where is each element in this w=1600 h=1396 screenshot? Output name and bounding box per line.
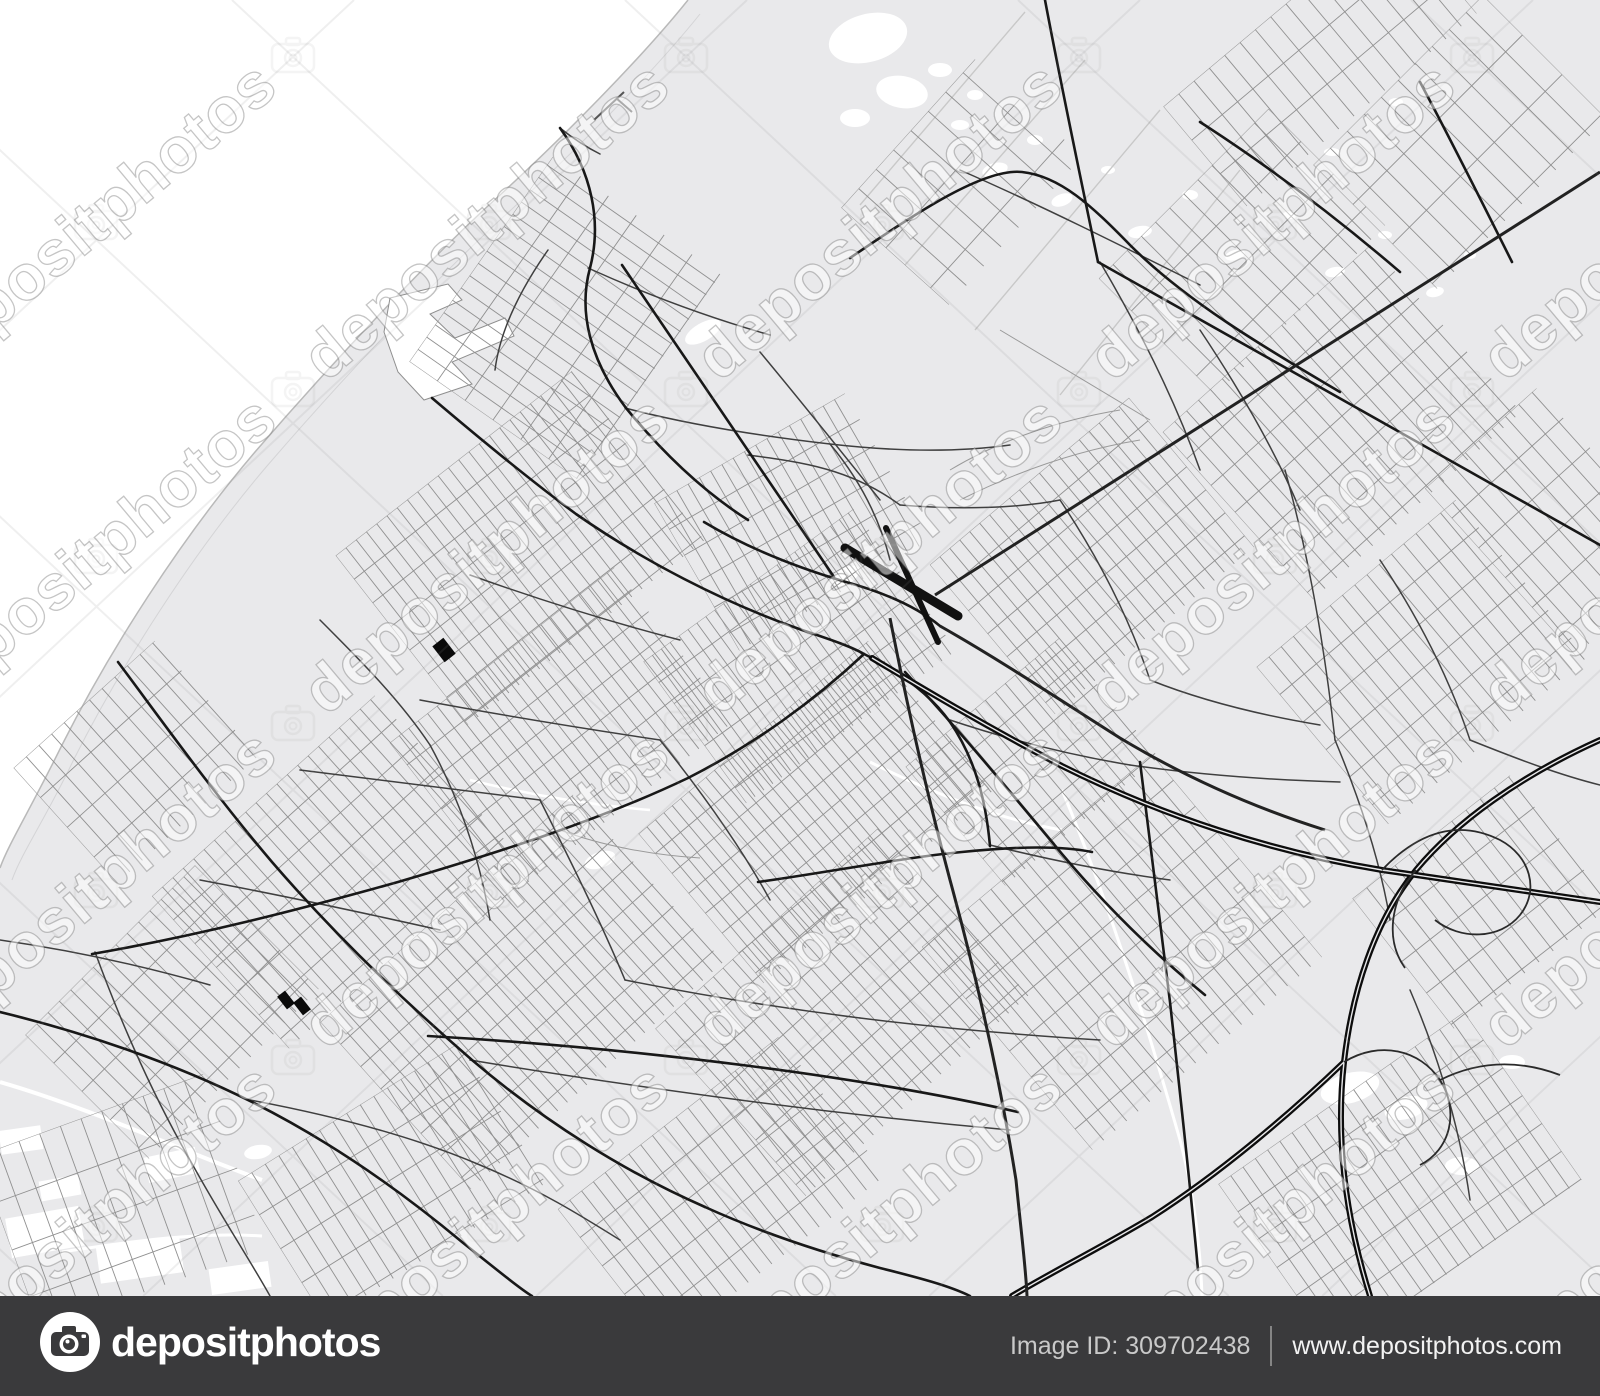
camera-icon: [38, 1310, 102, 1374]
brand-wordmark: depositphotos: [111, 1310, 380, 1374]
footer-divider: [1270, 1326, 1272, 1366]
image-id: Image ID: 309702438: [1010, 1332, 1250, 1361]
footer-bar: depositphotos Image ID: 309702438 www.de…: [0, 1296, 1600, 1396]
brand-logo: depositphotos: [38, 1310, 380, 1374]
stock-photo-preview: depositphotosdepositphotosdepositphotosd…: [0, 0, 1600, 1396]
city-map: depositphotosdepositphotosdepositphotosd…: [0, 0, 1600, 1296]
footer-meta: Image ID: 309702438 www.depositphotos.co…: [1010, 1296, 1562, 1396]
website-text: www.depositphotos.com: [1292, 1332, 1562, 1361]
